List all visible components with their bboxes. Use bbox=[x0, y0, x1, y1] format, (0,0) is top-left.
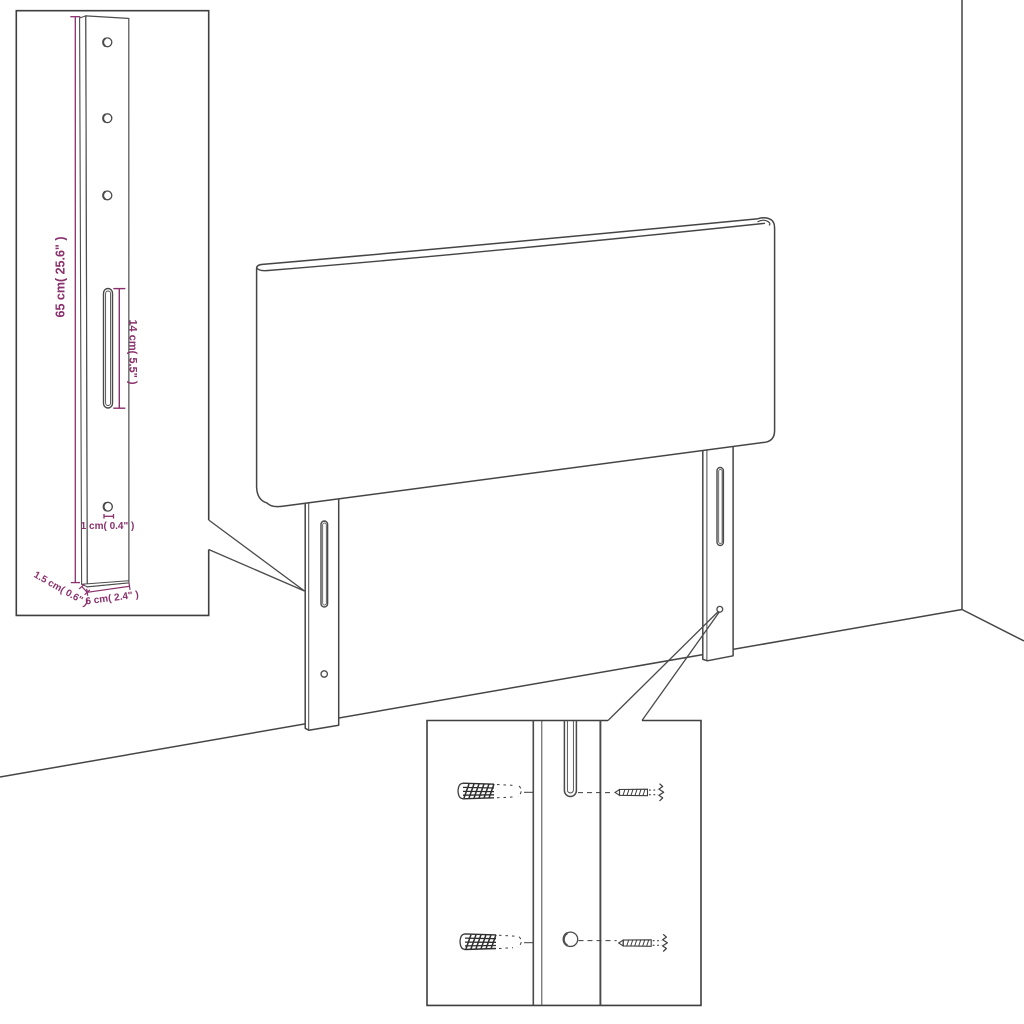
svg-text:65 cm( 25.6" ): 65 cm( 25.6" ) bbox=[54, 237, 68, 318]
svg-text:1 cm( 0.4" ): 1 cm( 0.4" ) bbox=[81, 521, 135, 532]
svg-text:14 cm( 5.5" ): 14 cm( 5.5" ) bbox=[127, 319, 139, 384]
